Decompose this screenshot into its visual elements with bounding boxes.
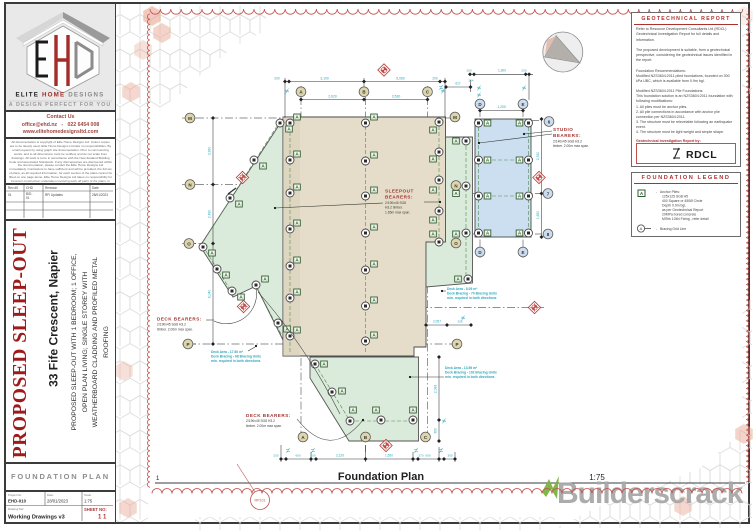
svg-text:CHD: CHD: [26, 186, 34, 190]
svg-text:Project No:: Project No:: [8, 493, 22, 497]
svg-text:200: 200: [466, 69, 471, 73]
svg-text:125x125 SG8 H5: 125x125 SG8 H5: [662, 194, 688, 198]
svg-text:MiTek 12kN Fixing , refer deta: MiTek 12kN Fixing , refer detail: [662, 217, 709, 221]
svg-text:400 Square or 450Ø Circle: 400 Square or 450Ø Circle: [662, 199, 702, 203]
svg-text:200: 200: [521, 69, 526, 73]
svg-text:RP101: RP101: [255, 499, 266, 503]
svg-text:617: 617: [455, 82, 461, 86]
svg-text:O: O: [187, 241, 191, 246]
svg-text:H3.2 timber.: H3.2 timber.: [385, 206, 403, 210]
svg-text:1: 1: [156, 476, 160, 482]
svg-text:ELITE HOME DESIGNS: ELITE HOME DESIGNS: [16, 92, 105, 99]
svg-text:Drawing Set:: Drawing Set:: [8, 507, 24, 511]
svg-text:EHD-010: EHD-010: [8, 499, 27, 504]
svg-text:3,530: 3,530: [392, 95, 401, 99]
svg-text:M: M: [453, 115, 457, 120]
svg-text:P: P: [455, 342, 458, 347]
svg-text:200: 200: [432, 77, 438, 81]
svg-text:1:75: 1:75: [84, 499, 93, 504]
svg-text:N: N: [454, 183, 457, 188]
svg-text:200: 200: [273, 454, 278, 458]
svg-text:STUDIO: STUDIO: [553, 127, 573, 132]
svg-text:timber. 2.00m max span.: timber. 2.00m max span.: [553, 144, 589, 148]
svg-text:204: 204: [468, 79, 473, 83]
svg-text:28/01/2023: 28/01/2023: [92, 193, 108, 197]
svg-text:BEARERS:: BEARERS:: [385, 195, 413, 200]
svg-text:min. required in both directio: min. required in both directions: [445, 375, 495, 379]
svg-text:Rev #0: Rev #0: [8, 186, 18, 190]
svg-text:Scale:: Scale:: [84, 493, 92, 497]
svg-text:P: P: [186, 342, 189, 347]
svg-text:300: 300: [447, 454, 452, 458]
svg-text:01: 01: [8, 193, 12, 197]
svg-text:600: 600: [425, 454, 430, 458]
svg-text:N: N: [188, 182, 191, 187]
svg-text:1,300: 1,300: [498, 69, 506, 73]
svg-text:Builderscrack: Builderscrack: [557, 477, 744, 510]
svg-text:Deck Area - 8.05 m²: Deck Area - 8.05 m²: [447, 287, 478, 291]
svg-text:01: 01: [26, 196, 30, 200]
svg-text:as per Geotechnical Report: as per Geotechnical Report: [662, 208, 703, 212]
svg-text:Deck Bracing - 68 Bracing Unit: Deck Bracing - 68 Bracing Units: [211, 355, 261, 359]
svg-text:O: O: [454, 241, 458, 246]
svg-text:timber. 2.00m max span.: timber. 2.00m max span.: [157, 328, 193, 332]
svg-text:Deck Area - 13.96 m²: Deck Area - 13.96 m²: [445, 366, 478, 370]
svg-text:min. required in both directio: min. required in both directions: [211, 359, 261, 363]
svg-text:2,620: 2,620: [328, 95, 337, 99]
svg-text:28/01/2023: 28/01/2023: [47, 499, 69, 504]
svg-text:Deck Bracing - 102 Bracing Uni: Deck Bracing - 102 Bracing Units: [445, 371, 497, 375]
svg-text:SHEET NO:: SHEET NO:: [84, 507, 107, 512]
svg-text:- Bracing Grid Line: - Bracing Grid Line: [656, 227, 686, 231]
svg-text:DECK BEARERS:: DECK BEARERS:: [157, 317, 202, 322]
svg-text:20MPa bored concrete: 20MPa bored concrete: [662, 212, 696, 216]
svg-text:1 1: 1 1: [98, 515, 107, 521]
svg-text:600: 600: [295, 454, 300, 458]
svg-text:200: 200: [310, 454, 315, 458]
svg-text:2/190x45 SG8 H3.2: 2/190x45 SG8 H3.2: [246, 419, 275, 423]
svg-text:E: E: [521, 102, 524, 107]
svg-text:2,057: 2,057: [433, 320, 441, 324]
svg-text:3,100: 3,100: [320, 77, 329, 81]
svg-text:Revision: Revision: [45, 186, 57, 190]
svg-text:2,530: 2,530: [536, 152, 540, 161]
svg-text:Date:: Date:: [47, 493, 54, 497]
svg-text:Date: Date: [92, 186, 99, 190]
svg-text:1,650: 1,650: [536, 211, 540, 220]
svg-text:1,650: 1,650: [385, 454, 393, 458]
svg-text:Depth 0.9m bgl,: Depth 0.9m bgl,: [662, 203, 686, 207]
svg-text:E: E: [521, 250, 524, 255]
svg-text:Working Drawings v3: Working Drawings v3: [8, 515, 65, 521]
svg-text:RDCL: RDCL: [686, 149, 717, 161]
svg-text:1.65m max span.: 1.65m max span.: [385, 211, 410, 215]
svg-text:DECK BEARERS:: DECK BEARERS:: [246, 413, 291, 418]
svg-text:Foundation Plan: Foundation Plan: [338, 471, 424, 483]
svg-text:SLEEPOUT: SLEEPOUT: [385, 189, 414, 194]
svg-text:BEARERS:: BEARERS:: [553, 133, 581, 138]
svg-text:min. required in both directio: min. required in both directions: [447, 296, 497, 300]
svg-text:- Anchor Piles:: - Anchor Piles:: [656, 190, 680, 194]
svg-text:6,040: 6,040: [208, 290, 212, 299]
svg-text:2,120: 2,120: [336, 454, 344, 458]
svg-text:2/190x45 SG8: 2/190x45 SG8: [385, 201, 406, 205]
svg-text:A: A: [640, 226, 643, 231]
svg-text:RFI Updates: RFI Updates: [45, 193, 63, 197]
svg-text:Deck Bracing - 70 Bracing Unit: Deck Bracing - 70 Bracing Units: [447, 292, 497, 296]
svg-text:2/140x45 SG8 H3.2: 2/140x45 SG8 H3.2: [553, 139, 582, 143]
svg-text:2/190x45 SG8 H3.2: 2/190x45 SG8 H3.2: [157, 323, 186, 327]
svg-text:200: 200: [274, 77, 280, 81]
svg-text:5,060: 5,060: [396, 77, 405, 81]
svg-text:300: 300: [434, 428, 438, 434]
svg-text:M: M: [188, 116, 192, 121]
svg-text:1,200: 1,200: [497, 105, 506, 109]
svg-text:3,930: 3,930: [208, 147, 212, 156]
svg-text:2,430: 2,430: [208, 210, 212, 219]
svg-text:270: 270: [418, 454, 423, 458]
svg-text:Deck Area - 17.60 m²: Deck Area - 17.60 m²: [211, 350, 244, 354]
svg-text:2,083: 2,083: [434, 385, 438, 394]
svg-text:timber. 2.00m max span.: timber. 2.00m max span.: [246, 424, 282, 428]
